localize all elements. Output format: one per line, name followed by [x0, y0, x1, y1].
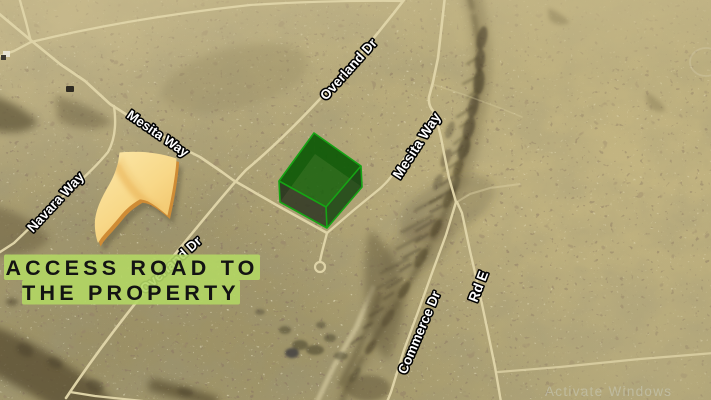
svg-text:Activate Windows: Activate Windows	[545, 384, 672, 399]
svg-text:ACCESS ROAD TO: ACCESS ROAD TO	[5, 256, 258, 280]
svg-text:THE PROPERTY: THE PROPERTY	[22, 281, 240, 305]
